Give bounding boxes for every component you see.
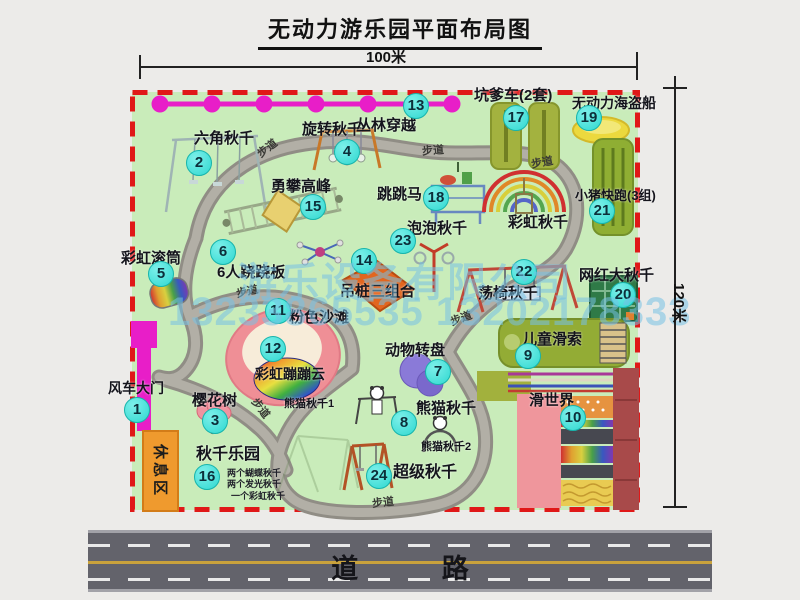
label-windmill-gate: 风车大门 xyxy=(108,381,164,396)
label-climbing-peak: 勇攀高峰 xyxy=(271,179,331,195)
badge-6: 6 xyxy=(210,239,236,265)
dimension-width-label: 100米 xyxy=(366,46,406,67)
badge-5: 5 xyxy=(148,261,174,287)
badge-9: 9 xyxy=(515,343,541,369)
road: 道 路 xyxy=(88,530,712,592)
badge-24: 24 xyxy=(366,463,392,489)
badge-21: 21 xyxy=(589,198,615,224)
label-bubble-swing: 泡泡秋千 xyxy=(407,221,467,237)
label-rainbow-swing: 彩虹秋千 xyxy=(508,215,568,231)
label-panda-swing: 熊猫秋千 xyxy=(416,401,476,417)
badge-16: 16 xyxy=(194,464,220,490)
label-seesaw: 6人跷跷板 xyxy=(217,265,285,281)
dimension-tick-right xyxy=(636,52,638,80)
badge-13: 13 xyxy=(403,93,429,119)
badge-4: 4 xyxy=(334,139,360,165)
badge-12: 12 xyxy=(260,336,286,362)
badge-14: 14 xyxy=(351,248,377,274)
rest-area-label: 休息区 xyxy=(150,444,171,498)
badge-22: 22 xyxy=(511,259,537,285)
badge-20: 20 xyxy=(610,282,636,308)
label-pink-beach: 粉色沙滩 xyxy=(289,310,349,326)
park-layout-poster: 道 路 休息区 风车大门 1 六角秋千 2 樱花树 3 旋转秋千 4 彩虹滚筒 … xyxy=(0,0,800,600)
road-label: 道 路 xyxy=(88,547,712,586)
walkway-label-6: 步道 xyxy=(371,493,395,511)
label-panda-swing-2: 熊猫秋千2 xyxy=(421,442,471,454)
badge-8: 8 xyxy=(391,410,417,436)
label-animal-turntable: 动物转盘 xyxy=(385,343,445,359)
swing-park-note-3: 一个彩虹秋千 xyxy=(231,489,285,502)
label-bouncing-cloud: 彩虹蹦蹦云 xyxy=(255,367,325,382)
label-jumping-horse: 跳跳马 xyxy=(377,187,422,203)
badge-1: 1 xyxy=(124,397,150,423)
dimension-height-label: 120米 xyxy=(669,283,690,323)
dimension-tick-bottom xyxy=(663,506,687,508)
page-title: 无动力游乐园平面布局图 xyxy=(258,12,542,50)
badge-23: 23 xyxy=(390,228,416,254)
label-super-swing: 超级秋千 xyxy=(393,465,457,482)
label-pit-car: 坑爹车(2套) xyxy=(474,88,552,104)
label-rotating-swing: 旋转秋千 xyxy=(302,122,362,138)
badge-2: 2 xyxy=(186,150,212,176)
badge-18: 18 xyxy=(423,185,449,211)
badge-17: 17 xyxy=(503,105,529,131)
label-piggy-run: 小猪快跑(3组) xyxy=(575,189,656,203)
badge-19: 19 xyxy=(576,105,602,131)
label-big-swing: 网红大秋千 xyxy=(579,268,654,284)
badge-3: 3 xyxy=(202,408,228,434)
label-swing-chair: 荡椅秋千 xyxy=(478,286,538,302)
badge-15: 15 xyxy=(300,194,326,220)
label-jungle-crossing: 丛林穿越 xyxy=(356,118,416,134)
badge-10: 10 xyxy=(560,405,586,431)
dimension-tick-top xyxy=(663,87,687,89)
badge-11: 11 xyxy=(265,298,291,324)
dimension-tick-left xyxy=(139,55,141,79)
label-cherry-tree: 樱花树 xyxy=(192,393,237,409)
rest-area: 休息区 xyxy=(142,430,179,512)
walkway-label-2: 步道 xyxy=(421,141,444,158)
label-swing-park: 秋千乐园 xyxy=(196,447,260,464)
label-hanging-pile: 吊桩三组合 xyxy=(340,284,415,300)
badge-7: 7 xyxy=(425,359,451,385)
label-panda-swing-1: 熊猫秋千1 xyxy=(284,399,334,411)
label-hexagon-swing: 六角秋千 xyxy=(194,131,254,147)
